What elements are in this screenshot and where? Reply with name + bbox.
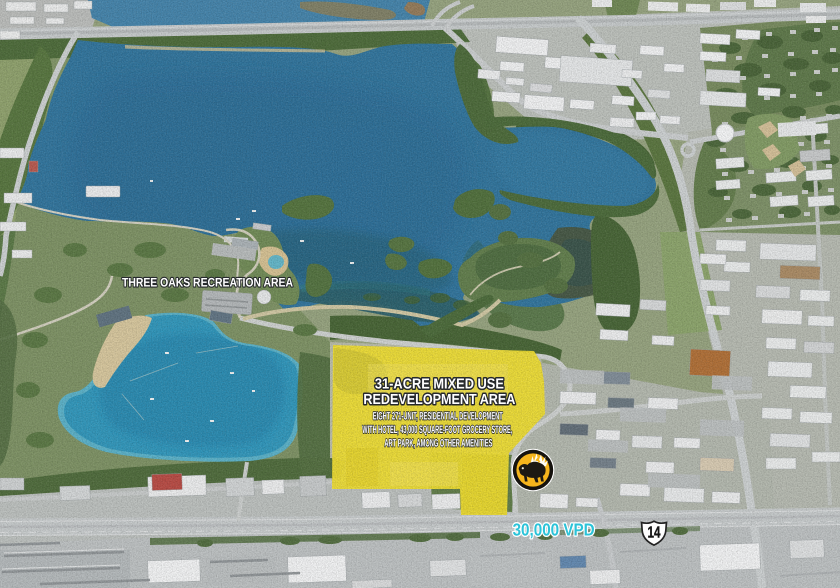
svg-text:31-ACRE MIXED USE: 31-ACRE MIXED USE: [375, 376, 504, 392]
svg-text:WITH HOTEL, 43,000 SQUARE-FOOT: WITH HOTEL, 43,000 SQUARE-FOOT GROCERY S…: [362, 424, 512, 436]
svg-text:REDEVELOPMENT AREA: REDEVELOPMENT AREA: [363, 392, 515, 408]
svg-text:THREE OAKS RECREATION AREA: THREE OAKS RECREATION AREA: [122, 276, 293, 290]
svg-text:ART PARK, AMONG OTHER AMENITIE: ART PARK, AMONG OTHER AMENITIES: [384, 438, 492, 450]
svg-text:14: 14: [648, 525, 661, 542]
svg-text:30,000 VPD: 30,000 VPD: [513, 519, 595, 539]
svg-text:EIGHT 271-UNIT, RESIDENTIAL DE: EIGHT 271-UNIT, RESIDENTIAL DEVELOPMENT: [373, 410, 503, 422]
